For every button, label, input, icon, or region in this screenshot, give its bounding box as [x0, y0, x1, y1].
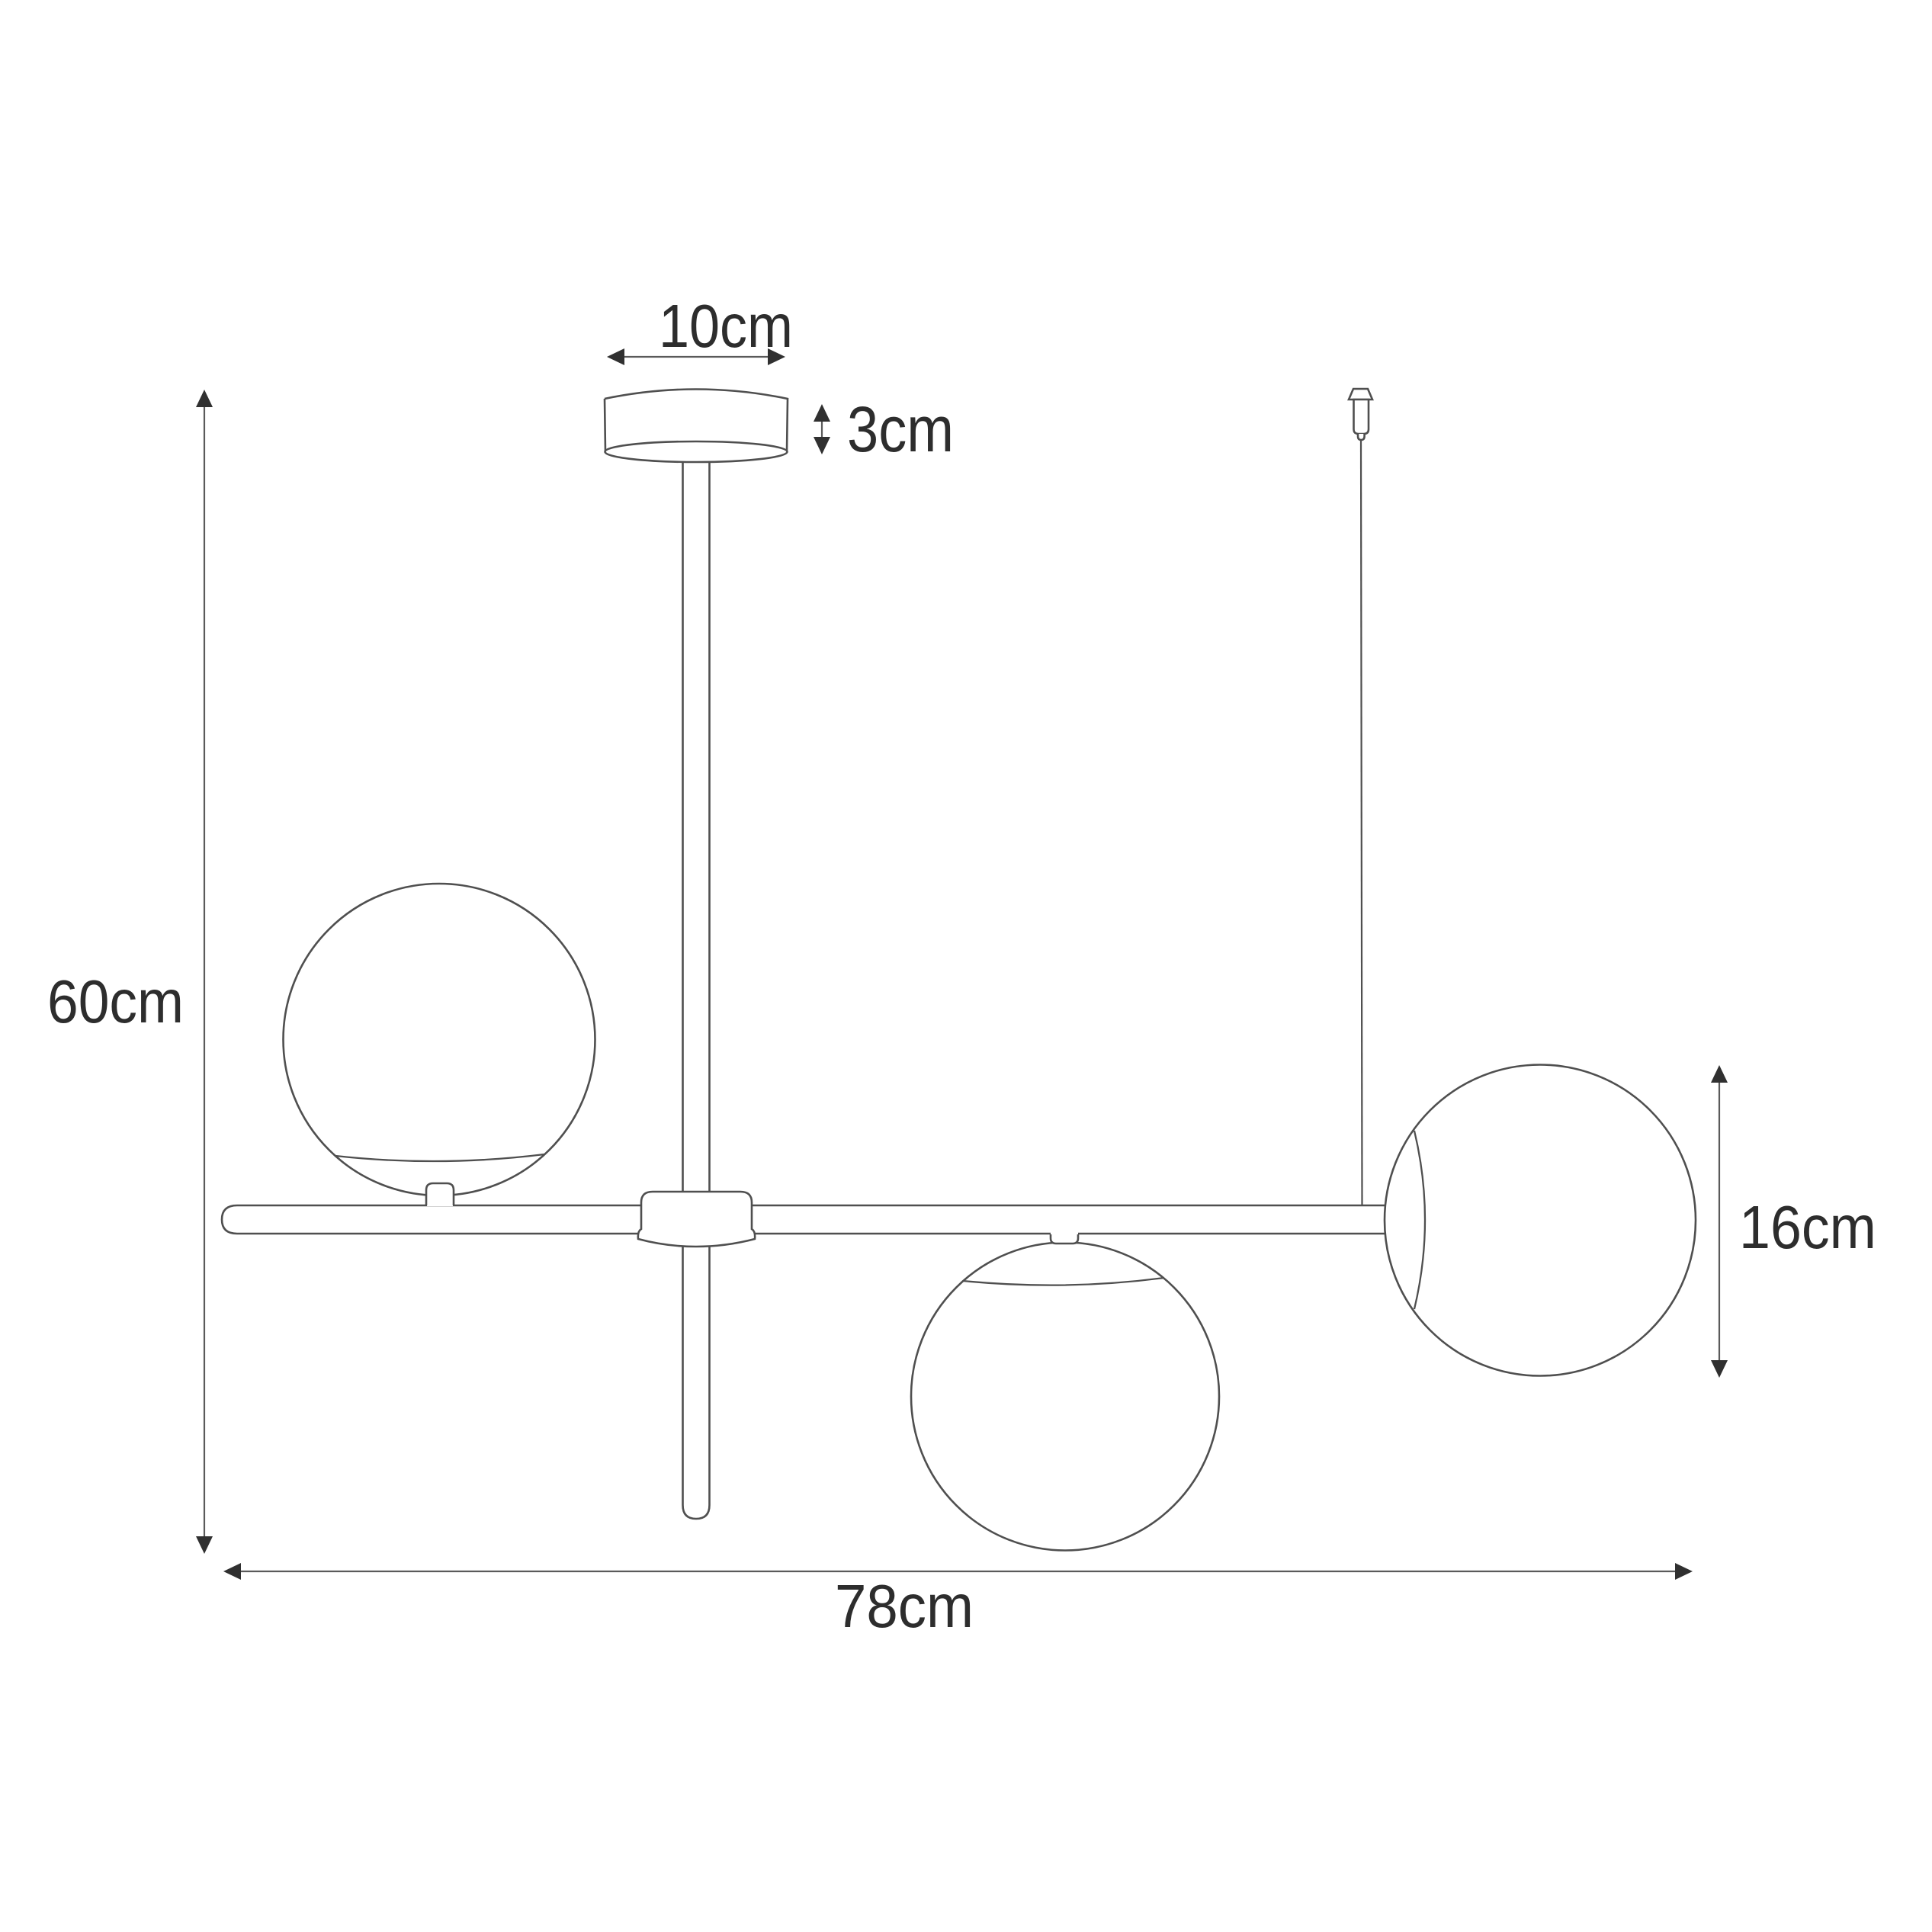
svg-text:60cm: 60cm	[47, 968, 184, 1035]
svg-text:3cm: 3cm	[847, 393, 954, 465]
svg-text:16cm: 16cm	[1739, 1193, 1876, 1261]
svg-text:10cm: 10cm	[659, 292, 793, 360]
svg-text:78cm: 78cm	[835, 1572, 974, 1640]
